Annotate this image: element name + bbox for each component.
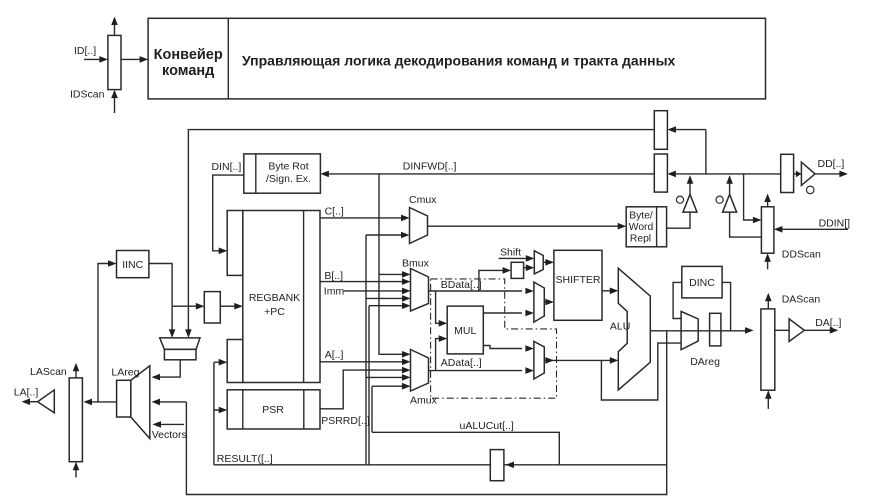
svg-text:DIN[..]: DIN[..] — [212, 161, 242, 173]
svg-text:A[..]: A[..] — [325, 349, 344, 361]
svg-text:Byte/: Byte/ — [629, 211, 653, 222]
svg-text:DA[..]: DA[..] — [815, 317, 841, 329]
svg-text:Repl: Repl — [630, 234, 651, 245]
svg-text:Конвейер: Конвейер — [154, 47, 223, 63]
svg-text:Управляющая логика декодирован: Управляющая логика декодирования команд … — [242, 53, 676, 69]
svg-text:ID[..]: ID[..] — [74, 45, 96, 57]
svg-text:LAreg: LAreg — [111, 366, 139, 378]
svg-text:PSRRD[..]: PSRRD[..] — [321, 415, 370, 427]
svg-text:PSR: PSR — [262, 404, 284, 416]
svg-text:RESULT([..]: RESULT([..] — [217, 453, 273, 465]
svg-text:LAScan: LAScan — [30, 366, 67, 378]
svg-text:DDIN[]: DDIN[] — [819, 217, 851, 229]
svg-text:MUL: MUL — [454, 325, 476, 337]
svg-text:DINC: DINC — [689, 277, 715, 289]
svg-text:Bmux: Bmux — [402, 258, 430, 270]
svg-text:IINC: IINC — [122, 259, 143, 271]
svg-text:DINFWD[..]: DINFWD[..] — [403, 161, 457, 173]
svg-text:DDScan: DDScan — [782, 248, 821, 260]
svg-text:команд: команд — [162, 63, 214, 79]
svg-text:LA[..]: LA[..] — [14, 387, 39, 399]
svg-text:B[..]: B[..] — [324, 270, 343, 282]
svg-text:+PC: +PC — [264, 306, 285, 318]
svg-text:C[..]: C[..] — [325, 206, 344, 218]
svg-text:uALUCut[..]: uALUCut[..] — [460, 420, 514, 432]
svg-text:IDScan: IDScan — [70, 89, 105, 101]
svg-text:Byte Rot: Byte Rot — [268, 161, 308, 173]
svg-text:/Sign. Ex.: /Sign. Ex. — [266, 173, 311, 185]
svg-text:DAreg: DAreg — [690, 356, 720, 368]
svg-text:Cmux: Cmux — [409, 194, 437, 206]
svg-text:ALU: ALU — [610, 321, 630, 333]
svg-text:Shift: Shift — [500, 246, 521, 258]
svg-text:DD[..]: DD[..] — [818, 158, 845, 170]
svg-text:DAScan: DAScan — [782, 293, 821, 305]
svg-text:REGBANK: REGBANK — [249, 292, 300, 304]
svg-text:Vectors: Vectors — [152, 429, 187, 441]
svg-text:Imm: Imm — [324, 286, 345, 298]
svg-text:BData[..]: BData[..] — [441, 279, 482, 291]
svg-text:AData[..]: AData[..] — [441, 357, 482, 369]
svg-text:SHIFTER: SHIFTER — [556, 274, 601, 286]
svg-text:Amux: Amux — [410, 394, 438, 406]
svg-text:Word: Word — [629, 222, 654, 233]
